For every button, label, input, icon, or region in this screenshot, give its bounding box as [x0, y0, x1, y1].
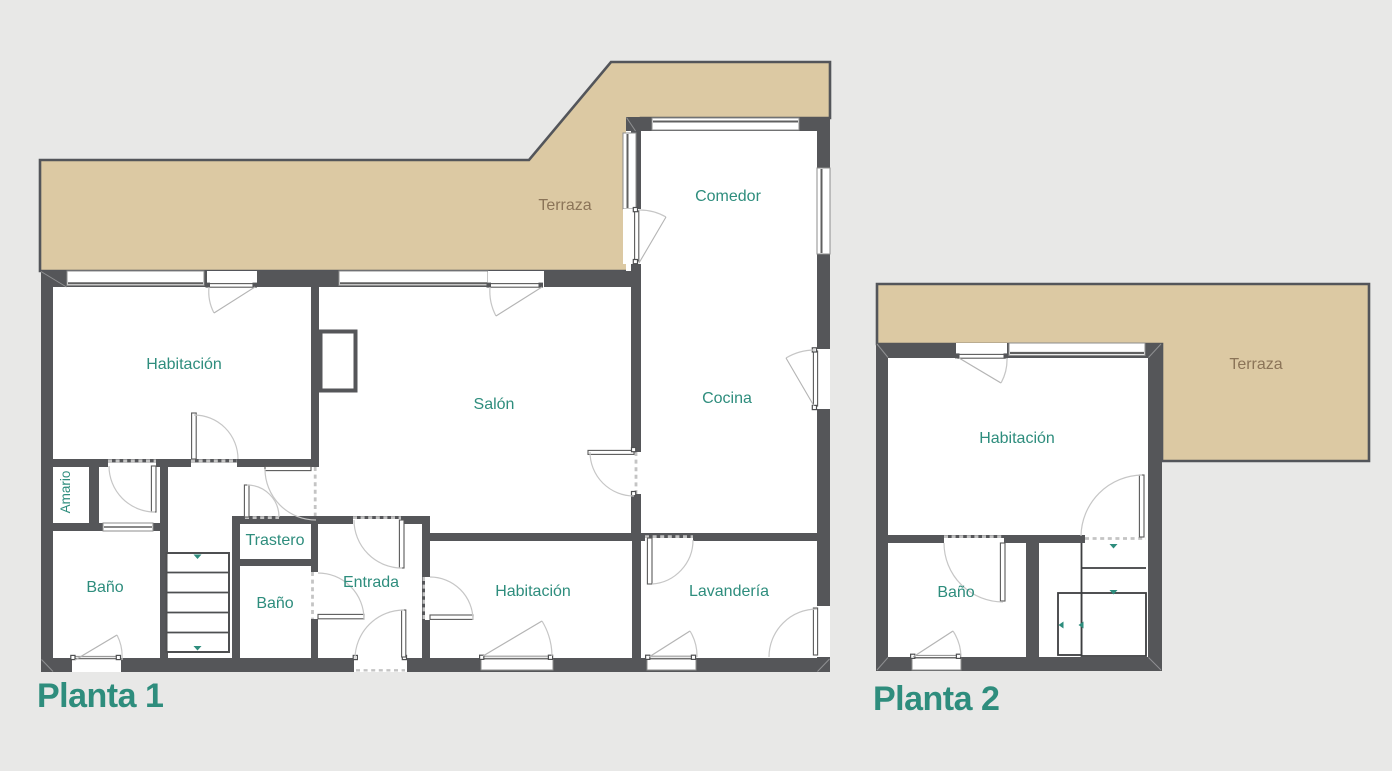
svg-text:Salón: Salón	[474, 396, 515, 413]
svg-text:Comedor: Comedor	[695, 188, 761, 205]
svg-text:Habitación: Habitación	[146, 356, 222, 373]
svg-text:Planta 1: Planta 1	[37, 677, 163, 715]
svg-text:Entrada: Entrada	[343, 574, 399, 591]
svg-text:Habitación: Habitación	[495, 583, 571, 600]
svg-text:Terraza: Terraza	[538, 197, 591, 214]
svg-text:Terraza: Terraza	[1229, 356, 1282, 373]
svg-text:Planta 2: Planta 2	[873, 680, 999, 718]
svg-text:Cocina: Cocina	[702, 390, 752, 407]
svg-text:Amario: Amario	[58, 471, 73, 514]
svg-text:Baño: Baño	[256, 595, 293, 612]
svg-text:Habitación: Habitación	[979, 430, 1055, 447]
svg-text:Baño: Baño	[937, 584, 974, 601]
svg-text:Trastero: Trastero	[246, 532, 305, 549]
svg-text:Baño: Baño	[86, 579, 123, 596]
svg-text:Lavandería: Lavandería	[689, 583, 769, 600]
